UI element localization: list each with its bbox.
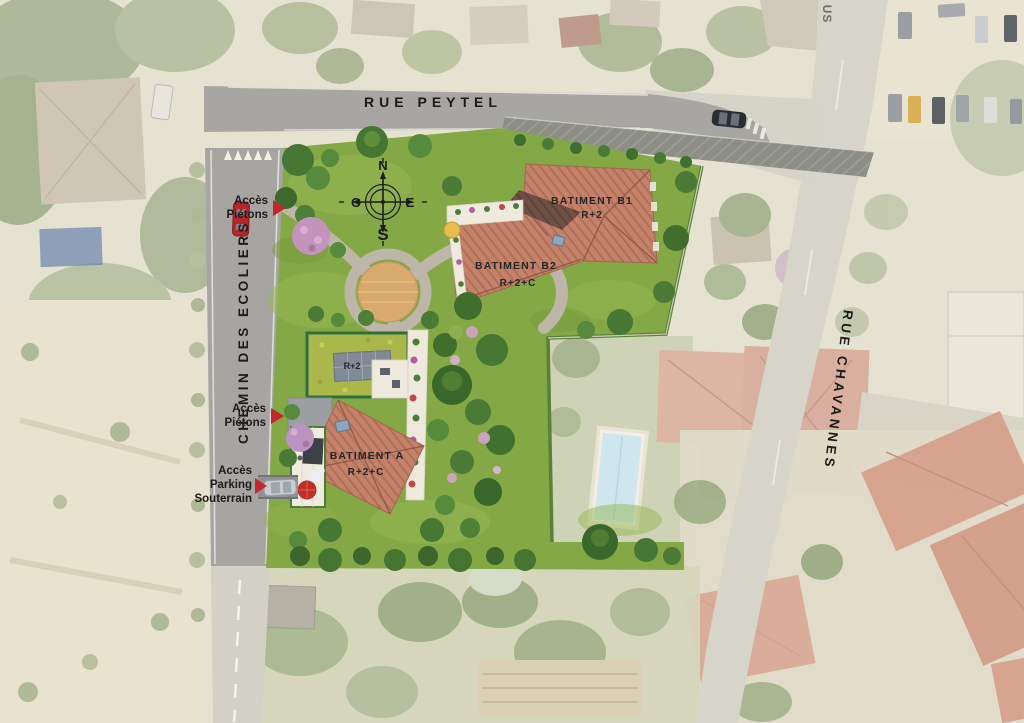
- yellow-parasol: [444, 222, 460, 238]
- acces-pietons-1-line1: Accès: [234, 195, 268, 207]
- green-roof-level-label: R+2: [344, 361, 361, 371]
- rue-peytel-label: RUE PEYTEL: [364, 94, 502, 110]
- compass-north-label: N: [378, 158, 387, 173]
- compass-east-label: E: [406, 195, 415, 210]
- batiment-b1-level: R+2: [581, 210, 603, 221]
- acces-parking-line1: Accès: [218, 465, 252, 477]
- acces-parking-line3: Souterrain: [194, 493, 252, 505]
- compass-south-label: S: [377, 225, 388, 244]
- batiment-a-name: BATIMENT A: [330, 450, 405, 462]
- pink-blossom-tree-1: [292, 217, 330, 255]
- skylight-a: [335, 420, 350, 432]
- site-plan-page: R+2 BATIMENT A R+2+C: [0, 0, 1024, 723]
- acces-parking-line2: Parking: [210, 479, 252, 491]
- existing-house-roof-nw: [35, 77, 146, 204]
- pink-blossom-tree-2: [286, 424, 314, 452]
- batiment-b1-name: BATIMENT B1: [551, 195, 633, 207]
- partial-street-label: US: [820, 5, 834, 24]
- batiment-a-level: R+2+C: [348, 467, 385, 478]
- acces-pietons-2-line2: Piétons: [224, 417, 266, 429]
- aerial-site-plan: R+2 BATIMENT A R+2+C: [0, 0, 1024, 723]
- existing-white-building: [948, 292, 1024, 426]
- silver-car: [264, 479, 297, 496]
- acces-pietons-1-line2: Piétons: [226, 209, 268, 221]
- compass-west-label: O: [351, 195, 361, 210]
- acces-pietons-2-line1: Accès: [232, 403, 266, 415]
- neighbor-pool-covered: [39, 227, 102, 267]
- batiment-b2-name: BATIMENT B2: [475, 260, 557, 272]
- garden-south: [228, 560, 700, 723]
- batiment-b2-level: R+2+C: [500, 278, 537, 289]
